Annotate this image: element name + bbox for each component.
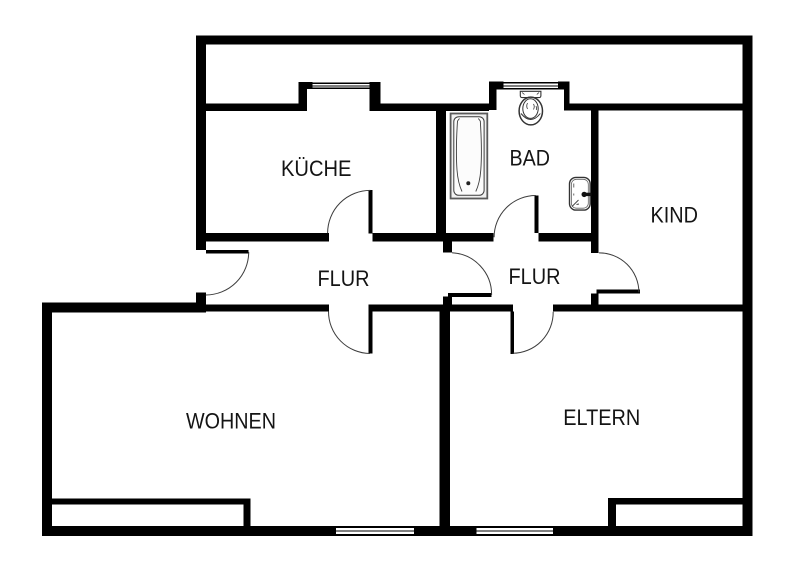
svg-text:KIND: KIND bbox=[651, 202, 699, 227]
svg-text:BAD: BAD bbox=[510, 146, 551, 171]
svg-text:WOHNEN: WOHNEN bbox=[186, 408, 276, 433]
svg-text:KÜCHE: KÜCHE bbox=[281, 156, 352, 181]
svg-text:FLUR: FLUR bbox=[509, 264, 561, 289]
svg-text:ELTERN: ELTERN bbox=[563, 405, 640, 430]
svg-text:FLUR: FLUR bbox=[318, 266, 370, 291]
